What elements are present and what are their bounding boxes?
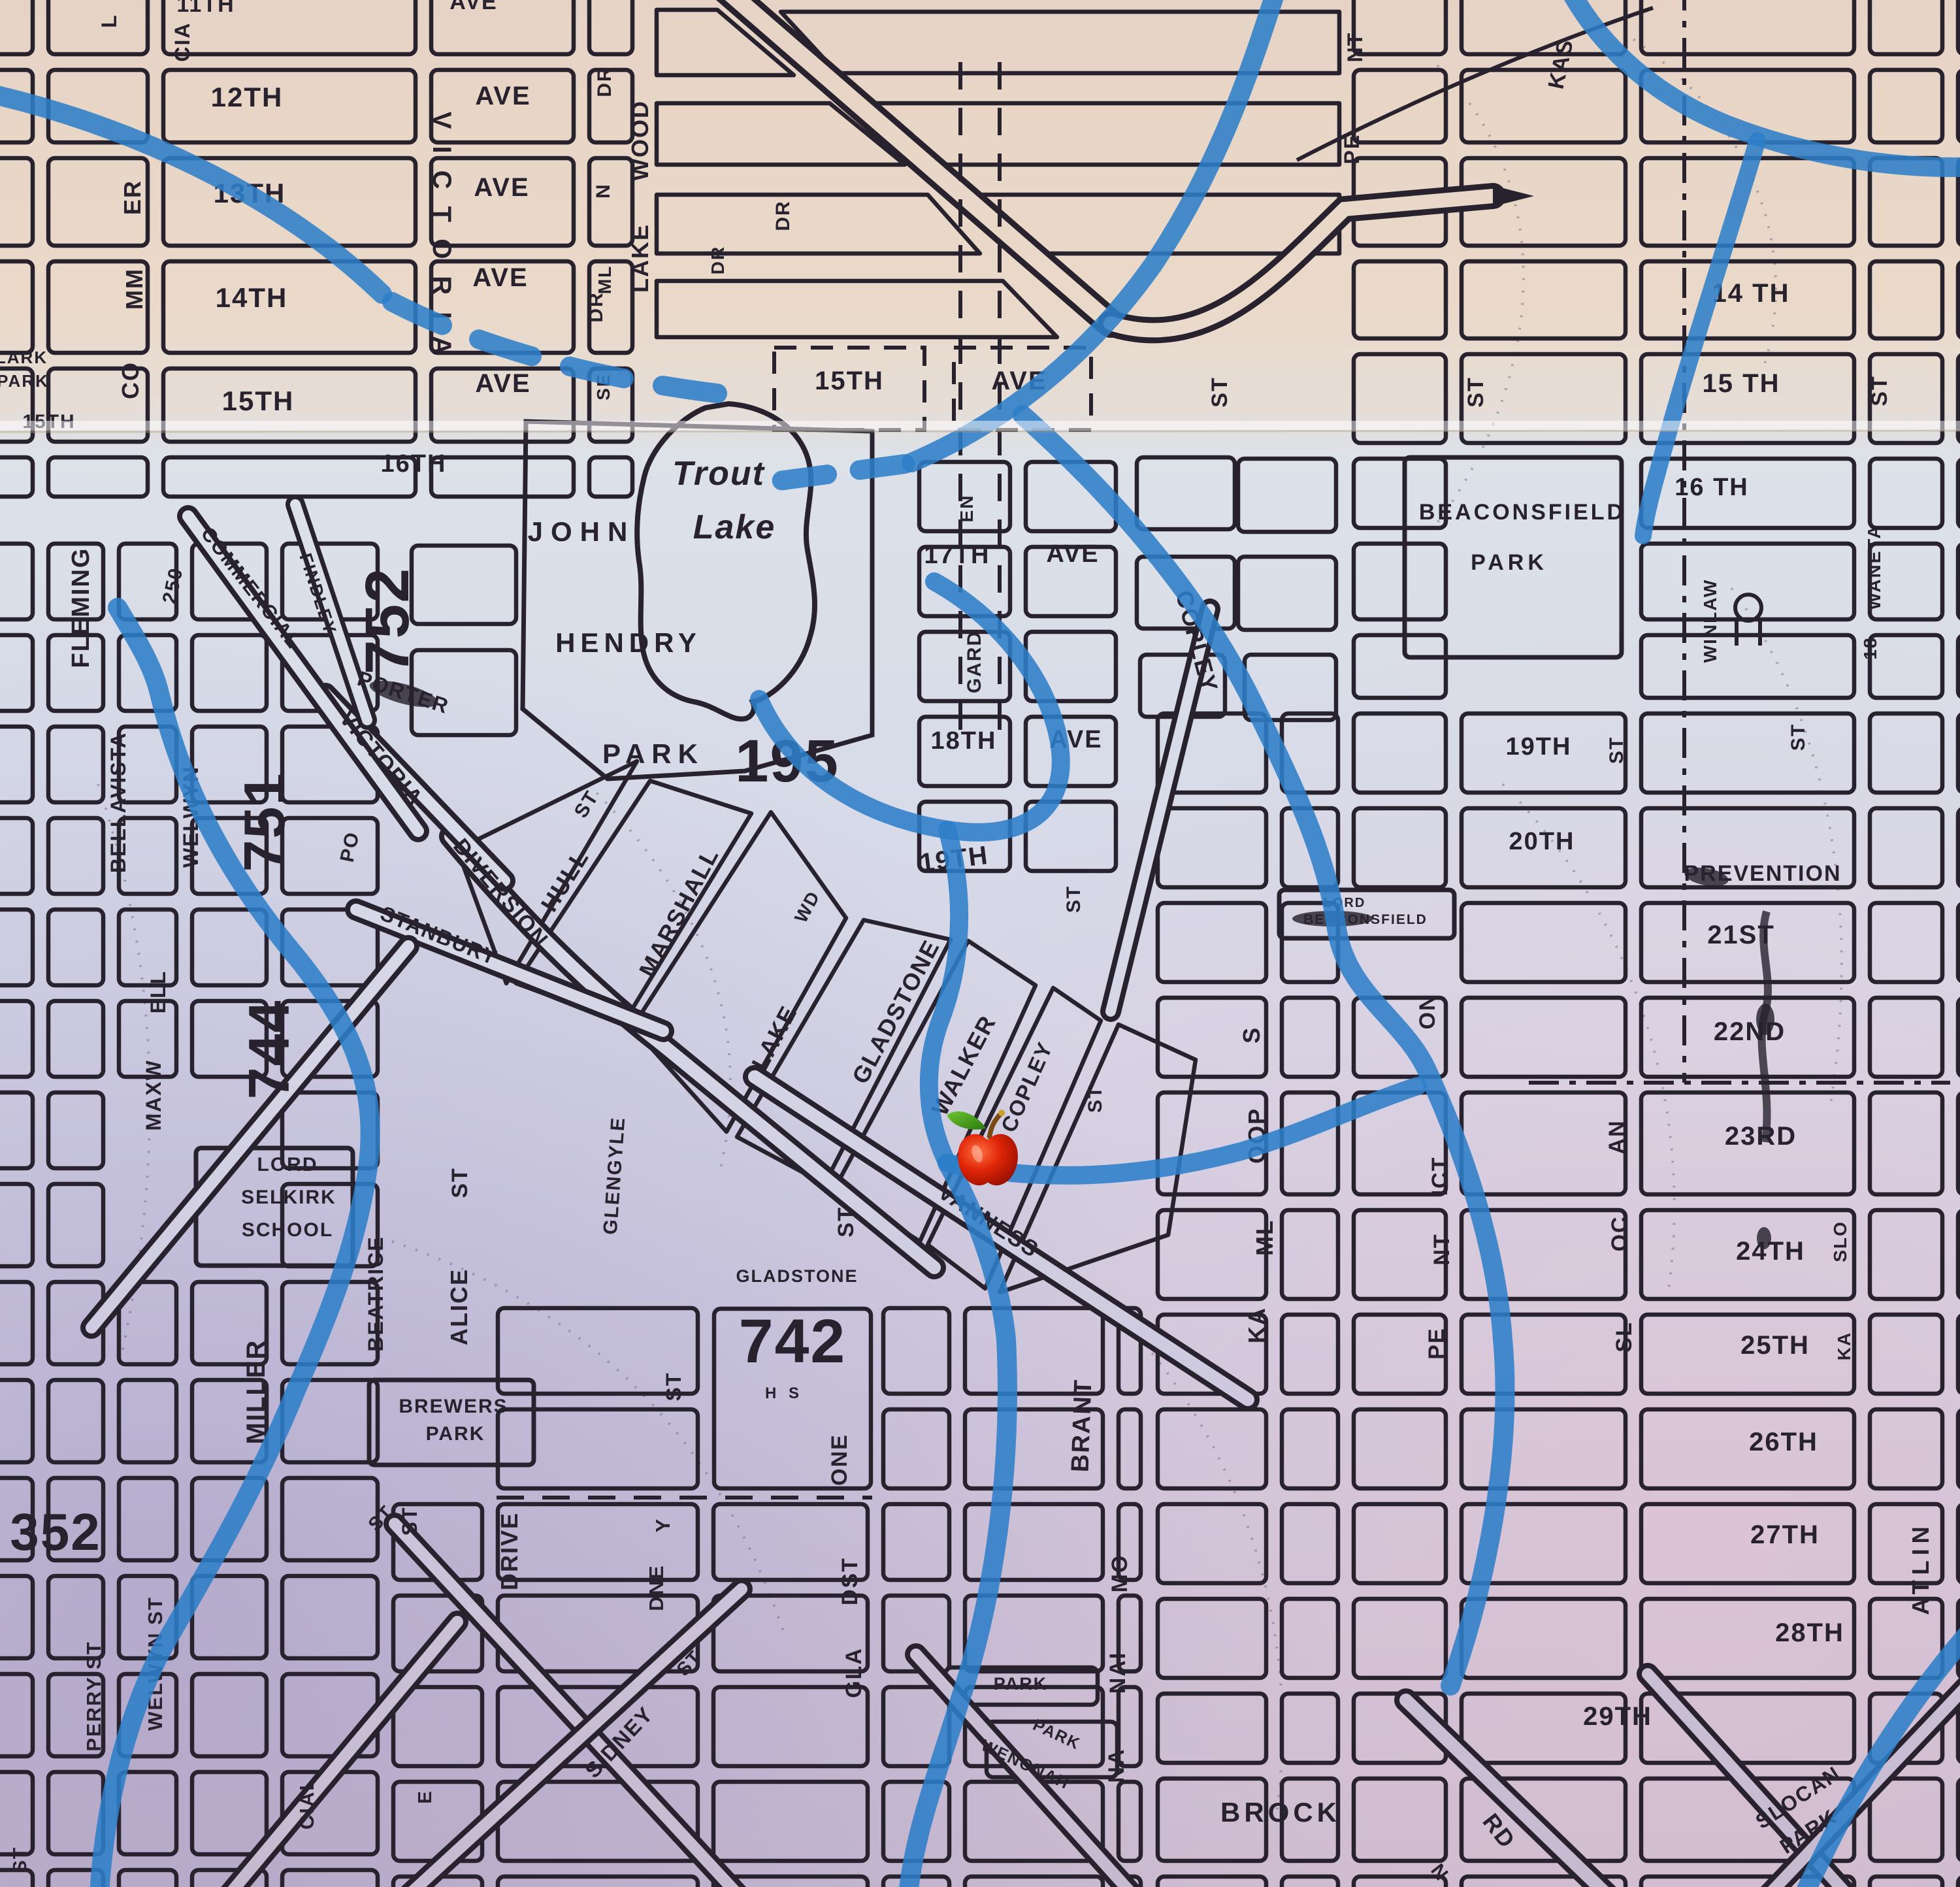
- map-label: BROCK: [1220, 1797, 1341, 1828]
- map-label: ML: [595, 265, 615, 294]
- map-label: BEACONSFIELD: [1419, 500, 1625, 525]
- map-label: SCHOOL: [242, 1219, 333, 1241]
- map-label: BREWERS: [399, 1396, 508, 1417]
- map-label: CO: [117, 361, 144, 399]
- map-label: PARK: [994, 1674, 1048, 1694]
- map-label: 16 TH: [1674, 474, 1748, 501]
- map-label: ML: [1251, 1219, 1278, 1256]
- map-label: ST: [1063, 885, 1085, 913]
- map-label: MO: [1107, 1554, 1132, 1593]
- map-label: 27TH: [1750, 1520, 1820, 1549]
- map-label: EN: [956, 495, 977, 523]
- map-label: ST: [1463, 376, 1488, 407]
- map-label: 18: [1860, 636, 1880, 659]
- map-label: PE: [1340, 134, 1364, 165]
- map-label: 16TH: [381, 450, 447, 478]
- map-label: NT: [1429, 1233, 1454, 1265]
- map-label: ST: [834, 1206, 858, 1237]
- street-map: 11THAVELCIAERMMCOLARKPARK15TH12TH13TH14T…: [0, 0, 1960, 1887]
- fold-crease-shadow: [0, 431, 1960, 432]
- map-label: MM: [121, 268, 148, 310]
- map-label: DR: [708, 246, 728, 274]
- map-label: 22ND: [1714, 1017, 1786, 1046]
- map-label: PARK: [602, 738, 704, 769]
- map-label: ST: [10, 1846, 31, 1873]
- map-label: LORD: [257, 1154, 318, 1175]
- map-label: ST: [398, 1507, 421, 1536]
- map-label: 352: [10, 1503, 101, 1561]
- map-label: GLA: [841, 1647, 866, 1698]
- map-label: NA: [1104, 1748, 1129, 1782]
- fold-crease: [0, 421, 1960, 431]
- map-label: Y: [651, 1518, 674, 1533]
- map-label: GLADSTONE: [736, 1266, 858, 1286]
- map-label: PARK: [0, 371, 49, 391]
- map-label: AN: [1605, 1119, 1629, 1154]
- map-label: SL: [1612, 1321, 1637, 1352]
- map-label: KA: [1243, 1307, 1270, 1343]
- map-label: ST: [1867, 375, 1892, 406]
- map-label: HENDRY: [555, 627, 702, 658]
- map-photo: 11THAVELCIAERMMCOLARKPARK15TH12TH13TH14T…: [0, 0, 1960, 1887]
- map-label: 12TH: [211, 82, 284, 112]
- map-label: 751: [232, 772, 297, 872]
- map-label: ONE: [827, 1434, 852, 1486]
- map-label: KA: [1834, 1332, 1854, 1360]
- map-label: OC: [1607, 1216, 1632, 1252]
- paper-crease: [0, 421, 1960, 432]
- map-label: ER: [119, 180, 146, 215]
- map-label: PARK: [426, 1423, 485, 1445]
- map-label: Lake: [693, 508, 776, 546]
- map-label: 14TH: [216, 282, 288, 313]
- map-label: BRANT: [1067, 1378, 1098, 1472]
- map-label: AVE: [449, 0, 497, 14]
- map-label: WINLAW: [1700, 579, 1720, 663]
- map-label: 15 TH: [1703, 369, 1780, 398]
- map-label: 18TH: [931, 727, 997, 755]
- map-label: DR: [594, 66, 615, 97]
- map-label: BELLAVISTA: [106, 732, 130, 873]
- map-label: CIAL: [295, 1777, 318, 1830]
- map-label: MILLER: [242, 1339, 270, 1445]
- map-label: AVE: [475, 82, 531, 110]
- map-label: WANETA: [1864, 524, 1884, 610]
- map-label: PE: [1424, 1327, 1449, 1359]
- map-label: NT: [1343, 32, 1367, 63]
- map-label: SELKIRK: [241, 1187, 336, 1208]
- apple-body-icon: [958, 1134, 1018, 1186]
- map-label: 742: [739, 1307, 847, 1376]
- map-label: ST: [1085, 1085, 1106, 1113]
- map-label: 744: [237, 1000, 301, 1100]
- map-label: 25TH: [1740, 1331, 1810, 1360]
- map-label: ST: [448, 1167, 472, 1198]
- map-label: 20TH: [1509, 828, 1575, 855]
- map-label: NAI: [1105, 1652, 1130, 1694]
- map-label: DRIVE: [496, 1512, 523, 1590]
- map-label: LAKE: [627, 223, 653, 293]
- map-label: PERRY ST: [82, 1641, 105, 1751]
- map-label: 15TH: [222, 386, 295, 416]
- map-label: FLEMING: [67, 548, 95, 668]
- map-label: 14 TH: [1712, 279, 1790, 308]
- map-label: H S: [765, 1385, 803, 1402]
- map-label: DR: [585, 291, 607, 322]
- map-label: N: [593, 183, 614, 199]
- map-label: Trout: [672, 455, 766, 493]
- map-label: ST: [1606, 736, 1627, 764]
- map-label: AVE: [472, 263, 528, 292]
- map-label: ST: [1207, 376, 1232, 407]
- map-label: DST: [838, 1557, 862, 1605]
- map-label: L: [97, 14, 121, 28]
- map-label: AVE: [475, 369, 531, 398]
- map-label: 23RD: [1725, 1122, 1797, 1151]
- map-label: 752: [353, 567, 422, 675]
- map-label: E: [415, 1790, 436, 1803]
- map-label: ELL: [146, 970, 170, 1013]
- map-label: ATLIN: [1907, 1521, 1934, 1615]
- map-label: BEATRICE: [364, 1236, 387, 1351]
- map-label: WOOD: [627, 100, 653, 181]
- map-label: 15TH: [815, 367, 884, 395]
- map-label: LARK: [0, 348, 48, 367]
- ink-smudge: [1757, 1227, 1771, 1249]
- map-label: CIA: [171, 22, 194, 61]
- map-label: DR: [772, 200, 794, 231]
- apple-stem-tip: [998, 1109, 1005, 1116]
- map-label: JOHN: [528, 516, 636, 547]
- map-label: MAXW: [142, 1059, 165, 1130]
- map-label: 17TH: [924, 542, 990, 569]
- map-label: ICT: [1428, 1157, 1452, 1196]
- map-label: 29TH: [1583, 1702, 1652, 1731]
- map-label: 11TH: [176, 0, 235, 17]
- map-label: 28TH: [1775, 1618, 1844, 1647]
- map-label: 26TH: [1749, 1428, 1818, 1456]
- map-label: SLO: [1830, 1221, 1850, 1262]
- map-label: 19TH: [1506, 733, 1572, 761]
- map-label: S: [1238, 1026, 1265, 1043]
- map-label: GARD: [964, 631, 985, 693]
- map-label: ALICE: [446, 1268, 472, 1345]
- map-label: AVE: [1046, 540, 1099, 568]
- map-label: DNE: [645, 1564, 668, 1611]
- map-label: AVE: [474, 173, 529, 202]
- map-label: ST: [1788, 723, 1809, 751]
- map-label: ST: [662, 1372, 685, 1402]
- map-label: PARK: [1471, 550, 1548, 575]
- map-label: ON: [1415, 994, 1440, 1030]
